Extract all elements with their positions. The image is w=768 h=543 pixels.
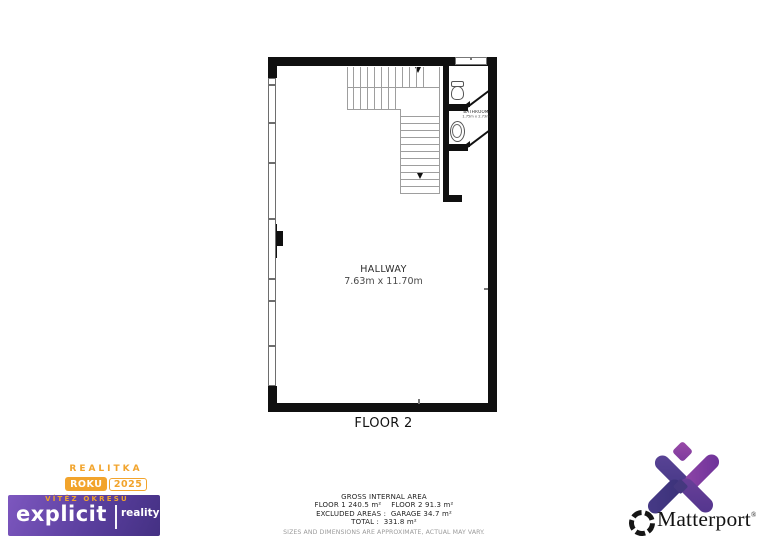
- wall-tick: [418, 399, 420, 404]
- award-tag-year: 2025: [109, 478, 146, 491]
- wall-left-top: [268, 57, 277, 78]
- toilet-bowl-icon: [451, 86, 464, 100]
- sink-basin-icon: [452, 124, 462, 138]
- matterport-head-diamond-icon: [671, 440, 692, 461]
- bathroom-dimensions: 1.75m x 2.73m: [454, 115, 497, 119]
- total-area: TOTAL : 331.8 m²: [234, 518, 534, 526]
- hallway-name: HALLWAY: [312, 264, 455, 275]
- registered-mark: ®: [751, 511, 757, 519]
- floor2-area: FLOOR 2 91.3 m²: [391, 501, 453, 509]
- wall-left-pier-bump: [277, 231, 283, 246]
- disclaimer: SIZES AND DIMENSIONS ARE APPROXIMATE, AC…: [234, 529, 534, 536]
- floor-title: FLOOR 2: [312, 416, 455, 431]
- wall-tick: [484, 288, 488, 290]
- matterport-x-icon: [648, 434, 732, 518]
- award-title: REALITKA: [56, 464, 156, 474]
- agency-brand-division: reality: [121, 507, 159, 519]
- agency-badge: REALITKA ROKU 2025 VÍTĚZ OKRESU explicit…: [8, 462, 160, 537]
- award-year-tag: ROKU 2025: [56, 477, 156, 491]
- area-summary-title: GROSS INTERNAL AREA: [234, 493, 534, 501]
- matterport-wordmark: Matterport®: [657, 507, 756, 532]
- floor1-area: FLOOR 1 240.5 m²: [315, 501, 382, 509]
- hallway-label: HALLWAY 7.63m x 11.70m: [312, 264, 455, 287]
- agency-logo-divider: [115, 505, 117, 529]
- area-summary-floors: FLOOR 1 240.5 m²FLOOR 2 91.3 m²: [234, 501, 534, 509]
- wall-bottom: [268, 403, 497, 412]
- wall-interior-vertical: [443, 66, 449, 197]
- wall-tick: [470, 57, 472, 60]
- window-strip: [268, 78, 276, 386]
- wall-bathroom-hall: [443, 144, 468, 151]
- wall-left-bottom: [268, 386, 277, 412]
- excluded-areas: EXCLUDED AREAS : GARAGE 34.7 m²: [234, 510, 534, 518]
- agency-brand-name: explicit: [16, 502, 107, 526]
- area-summary: GROSS INTERNAL AREA FLOOR 1 240.5 m²FLOO…: [234, 493, 534, 536]
- award-tag-roku: ROKU: [65, 477, 107, 491]
- hallway-dimensions: 7.63m x 11.70m: [312, 276, 455, 287]
- bathroom-label: BATHROOM 1.75m x 2.73m: [454, 110, 497, 119]
- wall-interior-foot: [443, 195, 462, 202]
